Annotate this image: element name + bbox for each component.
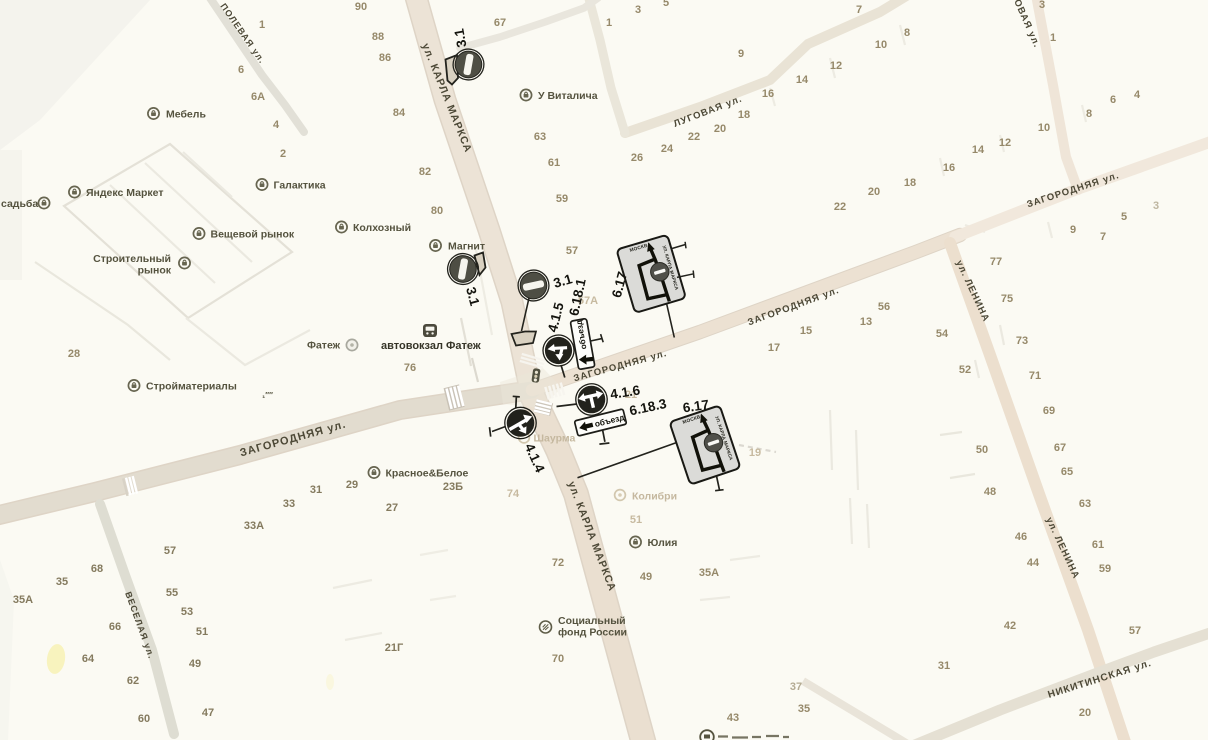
svg-text:Красное&Белое: Красное&Белое — [386, 468, 469, 480]
svg-text:Фатеж: Фатеж — [307, 340, 341, 352]
svg-text:3: 3 — [635, 4, 641, 16]
svg-text:автовокзал Фатеж: автовокзал Фатеж — [381, 340, 481, 352]
svg-text:55: 55 — [166, 587, 178, 599]
svg-text:6: 6 — [1110, 94, 1116, 106]
svg-text:Магнит: Магнит — [448, 241, 485, 253]
svg-text:7: 7 — [856, 4, 862, 16]
svg-text:10: 10 — [1038, 122, 1050, 134]
svg-text:1: 1 — [606, 17, 612, 29]
svg-text:4: 4 — [273, 119, 280, 131]
svg-text:80: 80 — [431, 205, 443, 217]
svg-text:73: 73 — [1016, 335, 1028, 347]
svg-text:16: 16 — [943, 162, 955, 174]
svg-text:71: 71 — [1029, 370, 1041, 382]
svg-text:51: 51 — [196, 626, 208, 638]
svg-text:рынок: рынок — [138, 265, 172, 277]
svg-text:18: 18 — [738, 109, 750, 121]
svg-text:88: 88 — [372, 31, 384, 43]
svg-text:70: 70 — [552, 653, 564, 665]
svg-text:23Б: 23Б — [443, 481, 463, 493]
svg-text:Мебель: Мебель — [166, 109, 206, 121]
svg-text:7: 7 — [1100, 231, 1106, 243]
svg-text:8: 8 — [1086, 108, 1092, 120]
svg-text:15: 15 — [800, 325, 812, 337]
svg-text:76: 76 — [404, 362, 416, 374]
svg-text:Колхозный: Колхозный — [353, 222, 411, 234]
svg-text:63: 63 — [534, 131, 546, 143]
svg-text:52: 52 — [959, 364, 971, 376]
svg-text:13: 13 — [860, 316, 872, 328]
svg-text:1: 1 — [1050, 32, 1056, 44]
svg-text:57: 57 — [1129, 625, 1141, 637]
svg-text:54: 54 — [936, 328, 949, 340]
svg-text:27: 27 — [386, 502, 398, 514]
svg-text:1: 1 — [259, 19, 265, 31]
svg-text:49: 49 — [189, 658, 201, 670]
svg-text:28: 28 — [68, 348, 80, 360]
svg-text:фонд России: фонд России — [558, 627, 627, 639]
svg-text:Строительный: Строительный — [93, 253, 171, 265]
svg-text:Стройматериалы: Стройматериалы — [146, 381, 237, 393]
svg-text:67: 67 — [494, 17, 506, 29]
svg-text:22: 22 — [834, 201, 846, 213]
svg-text:20: 20 — [714, 123, 726, 135]
svg-text:33: 33 — [283, 498, 295, 510]
svg-text:67: 67 — [1054, 442, 1066, 454]
svg-text:63: 63 — [1079, 498, 1091, 510]
svg-text:18: 18 — [904, 177, 916, 189]
svg-text:3: 3 — [1039, 0, 1045, 11]
svg-text:16: 16 — [762, 88, 774, 100]
svg-text:42: 42 — [1004, 620, 1016, 632]
svg-text:59: 59 — [556, 193, 568, 205]
svg-text:Юлия: Юлия — [648, 537, 678, 549]
svg-text:6: 6 — [238, 64, 244, 76]
svg-text:29: 29 — [346, 479, 358, 491]
svg-text:49: 49 — [640, 571, 652, 583]
svg-text:66: 66 — [109, 621, 121, 633]
svg-text:21Г: 21Г — [385, 642, 404, 654]
svg-text:Яндекс Маркет: Яндекс Маркет — [86, 187, 164, 199]
svg-text:64: 64 — [82, 653, 95, 665]
svg-text:68: 68 — [91, 563, 103, 575]
svg-text:35: 35 — [798, 703, 810, 715]
svg-text:84: 84 — [393, 107, 406, 119]
svg-text:65: 65 — [1061, 466, 1073, 478]
svg-text:26: 26 — [631, 152, 643, 164]
svg-text:Колибри: Колибри — [632, 491, 677, 503]
svg-text:10: 10 — [875, 39, 887, 51]
svg-text:90: 90 — [355, 1, 367, 13]
svg-text:75: 75 — [1001, 293, 1013, 305]
svg-text:57: 57 — [164, 545, 176, 557]
svg-text:50: 50 — [976, 444, 988, 456]
svg-text:12: 12 — [830, 60, 842, 72]
svg-text:₁″″: ₁″″ — [262, 391, 273, 400]
svg-text:14: 14 — [972, 144, 985, 156]
svg-text:9: 9 — [1070, 224, 1076, 236]
svg-text:72: 72 — [552, 557, 564, 569]
svg-text:74: 74 — [507, 488, 520, 500]
svg-text:24: 24 — [661, 143, 674, 155]
svg-text:Шаурма: Шаурма — [534, 433, 576, 445]
svg-text:2: 2 — [280, 148, 286, 160]
svg-text:77: 77 — [990, 256, 1002, 268]
svg-text:46: 46 — [1015, 531, 1027, 543]
svg-text:56: 56 — [878, 301, 890, 313]
svg-text:садьба: садьба — [1, 198, 38, 210]
svg-text:20: 20 — [868, 186, 880, 198]
svg-text:У Виталича: У Виталича — [538, 90, 598, 102]
svg-text:6А: 6А — [251, 91, 265, 103]
svg-text:51: 51 — [630, 514, 642, 526]
svg-text:61: 61 — [548, 157, 560, 169]
svg-text:4: 4 — [1134, 89, 1141, 101]
svg-text:82: 82 — [419, 166, 431, 178]
svg-text:12: 12 — [999, 137, 1011, 149]
svg-text:86: 86 — [379, 52, 391, 64]
svg-text:60: 60 — [138, 713, 150, 725]
svg-text:Галактика: Галактика — [274, 180, 326, 192]
svg-text:14: 14 — [796, 74, 809, 86]
svg-text:47: 47 — [202, 707, 214, 719]
svg-text:17: 17 — [768, 342, 780, 354]
svg-text:35А: 35А — [13, 594, 33, 606]
svg-text:44: 44 — [1027, 557, 1040, 569]
svg-text:37: 37 — [790, 681, 802, 693]
svg-text:5: 5 — [1121, 211, 1127, 223]
svg-text:3: 3 — [1153, 200, 1159, 212]
svg-text:9: 9 — [738, 48, 744, 60]
svg-text:5: 5 — [663, 0, 669, 9]
svg-text:Социальный: Социальный — [558, 615, 626, 627]
svg-text:53: 53 — [181, 606, 193, 618]
svg-text:69: 69 — [1043, 405, 1055, 417]
svg-text:59: 59 — [1099, 563, 1111, 575]
svg-text:31: 31 — [310, 484, 322, 496]
svg-text:31: 31 — [938, 660, 950, 672]
svg-text:35: 35 — [56, 576, 68, 588]
svg-text:22: 22 — [688, 131, 700, 143]
svg-text:43: 43 — [727, 712, 739, 724]
svg-text:61: 61 — [1092, 539, 1104, 551]
svg-text:Вещевой рынок: Вещевой рынок — [211, 229, 295, 241]
svg-text:20: 20 — [1079, 707, 1091, 719]
svg-text:35А: 35А — [699, 567, 719, 579]
svg-text:8: 8 — [904, 27, 910, 39]
svg-text:62: 62 — [127, 675, 139, 687]
svg-text:33А: 33А — [244, 520, 264, 532]
svg-text:19: 19 — [749, 447, 761, 459]
svg-text:48: 48 — [984, 486, 996, 498]
svg-text:57: 57 — [566, 245, 578, 257]
